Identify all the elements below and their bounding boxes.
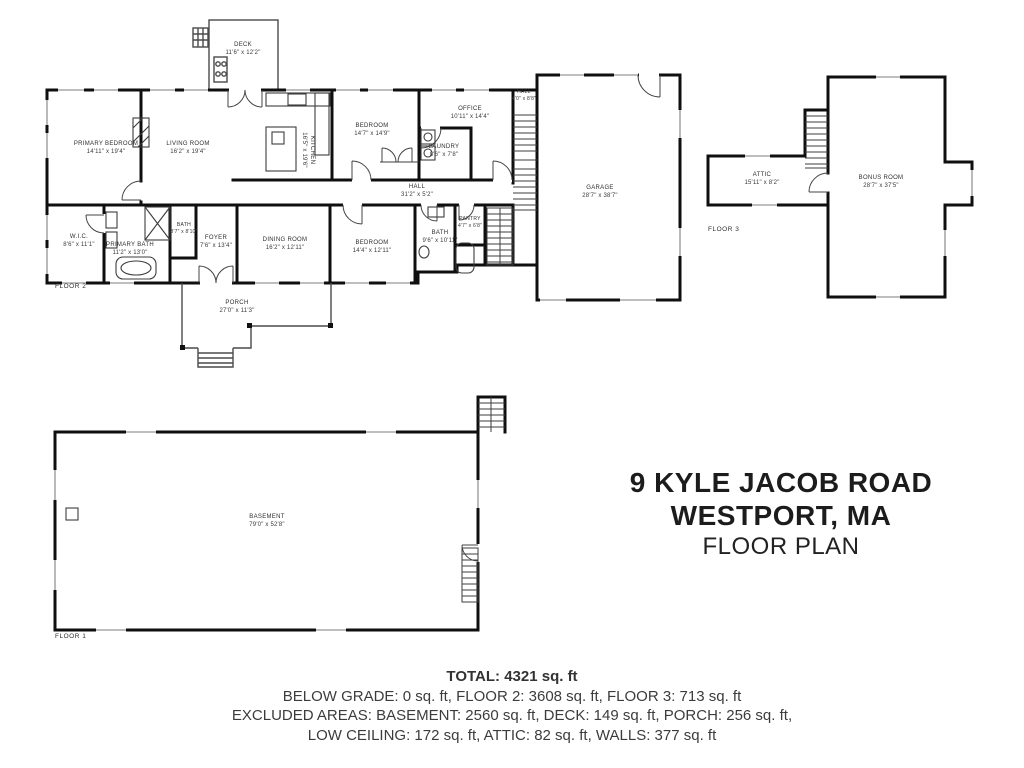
room-label-bath-small: BATH 3'7" x 8'10"	[170, 223, 197, 235]
room-label-deck: DECK 11'6" x 12'2"	[225, 42, 260, 56]
room-label-office: OFFICE 10'11" x 14'4"	[451, 106, 490, 120]
floor1-stairs	[462, 397, 505, 602]
room-label-foyer: FOYER 7'6" x 13'4"	[200, 235, 232, 249]
room-label-bonus-room: BONUS ROOM 28'7" x 37'5"	[859, 175, 904, 189]
room-label-bath: BATH 9'6" x 10'11"	[422, 230, 457, 244]
summary-grades: BELOW GRADE: 0 sq. ft, FLOOR 2: 3608 sq.…	[0, 687, 1024, 707]
room-label-living-room: LIVING ROOM 16'2" x 19'4"	[166, 141, 209, 155]
floor3-walls	[708, 77, 972, 297]
summary-excluded-2: LOW CEILING: 172 sq. ft, ATTIC: 82 sq. f…	[0, 726, 1024, 746]
address-line-2: WESTPORT, MA	[630, 499, 933, 532]
room-label-garage: GARAGE 28'7" x 38'7"	[582, 185, 618, 199]
title-block: 9 KYLE JACOB ROAD WESTPORT, MA FLOOR PLA…	[630, 466, 933, 561]
porch-outline	[180, 283, 333, 367]
floor3-tag: FLOOR 3	[708, 226, 739, 233]
room-label-primary-bedroom: PRIMARY BEDROOM 14'11" x 19'4"	[74, 141, 138, 155]
plan-subtitle: FLOOR PLAN	[630, 532, 933, 561]
summary-total: TOTAL: 4321 sq. ft	[0, 667, 1024, 687]
room-label-primary-bath: PRIMARY BATH 11'2" x 13'0"	[106, 242, 154, 256]
room-label-porch: PORCH 27'0" x 11'3"	[219, 300, 254, 314]
floor1-fixtures	[66, 508, 78, 520]
room-label-bedroom-bottom: BEDROOM 14'4" x 12'11"	[353, 240, 392, 254]
room-label-wic: W.I.C. 8'6" x 11'1"	[63, 234, 95, 248]
room-label-bedroom-top: BEDROOM 14'7" x 14'9"	[354, 123, 390, 137]
floor3-stairs	[805, 116, 828, 168]
room-label-laundry: LAUNDRY 8'6" x 7'8"	[429, 144, 460, 158]
room-label-hall: HALL 31'2" x 5'2"	[401, 184, 433, 198]
summary-excluded-1: EXCLUDED AREAS: BASEMENT: 2560 sq. ft, D…	[0, 706, 1024, 726]
room-label-pantry: PANTRY 4'7" x 6'8"	[458, 217, 482, 229]
floor2-tag: FLOOR 2	[55, 283, 86, 290]
floor3-plan	[708, 77, 972, 297]
room-label-kitchen: KITCHEN 16'5" x 19'6"	[301, 132, 315, 168]
room-label-dining-room: DINING ROOM 16'2" x 12'11"	[263, 237, 308, 251]
floor1-tag: FLOOR 1	[55, 633, 86, 640]
address-line-1: 9 KYLE JACOB ROAD	[630, 466, 933, 499]
floor-plan-drawing	[0, 0, 1024, 768]
floor3-doors	[809, 173, 828, 192]
floor1-windows	[55, 432, 478, 630]
area-summary: TOTAL: 4321 sq. ft BELOW GRADE: 0 sq. ft…	[0, 667, 1024, 745]
room-label-attic: ATTIC 15'11" x 8'2"	[744, 172, 779, 186]
room-label-hall-small: HALL 4'0" x 8'8"	[512, 90, 536, 102]
room-label-basement: BASEMENT 79'0" x 52'8"	[249, 514, 285, 528]
